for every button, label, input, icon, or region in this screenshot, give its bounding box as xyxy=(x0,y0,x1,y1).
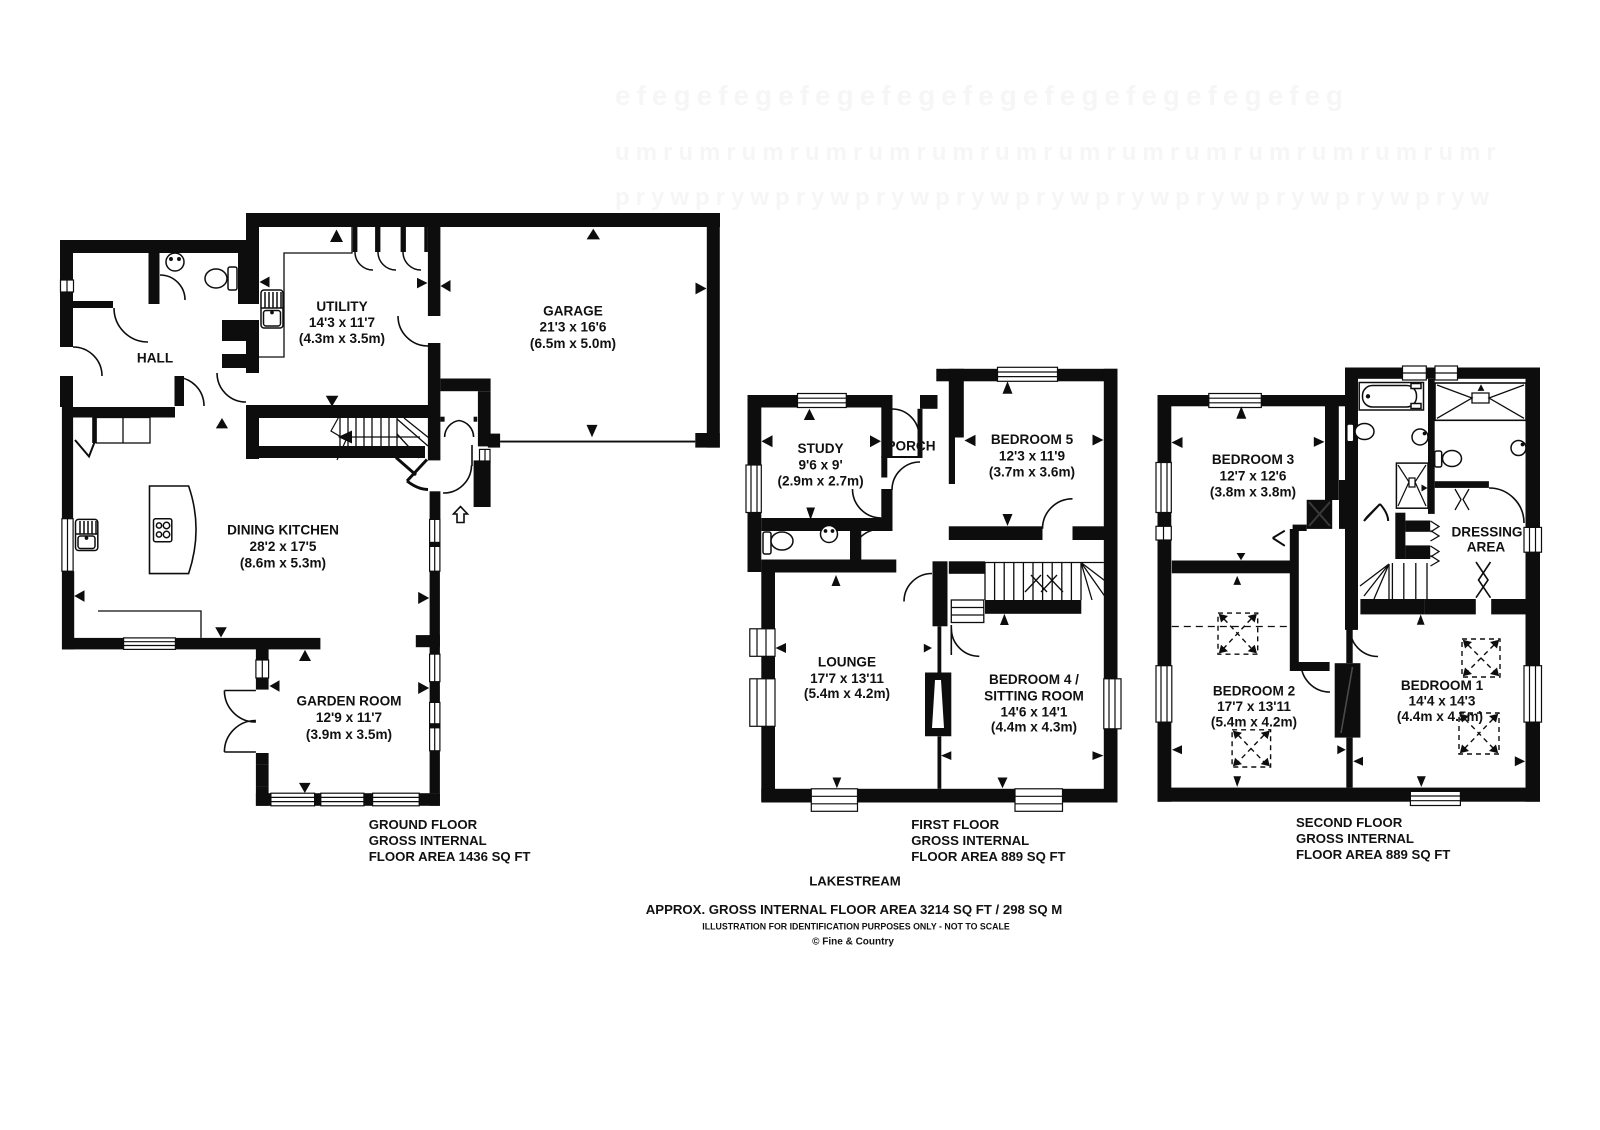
svg-text:efegefegefegefegefegefegefegef: efegefegefegefegefegefegefegefegefeg xyxy=(615,80,1349,111)
svg-text:GARAGE: GARAGE xyxy=(543,304,603,319)
svg-text:BEDROOM 2: BEDROOM 2 xyxy=(1213,683,1296,698)
svg-text:12'9 x 11'7: 12'9 x 11'7 xyxy=(316,710,382,725)
svg-text:14'3 x 11'7: 14'3 x 11'7 xyxy=(309,315,375,330)
svg-text:(5.4m x 4.2m): (5.4m x 4.2m) xyxy=(1211,714,1297,729)
svg-text:GROUND FLOOR: GROUND FLOOR xyxy=(369,817,478,832)
svg-text:BEDROOM 1: BEDROOM 1 xyxy=(1401,678,1484,693)
svg-text:DRESSING: DRESSING xyxy=(1451,525,1522,540)
svg-text:DINING KITCHEN: DINING KITCHEN xyxy=(227,523,339,538)
svg-text:12'7 x 12'6: 12'7 x 12'6 xyxy=(1220,468,1287,483)
svg-text:GROSS INTERNAL: GROSS INTERNAL xyxy=(911,833,1029,848)
svg-text:prywprywprywprywprywprywprywpr: prywprywprywprywprywprywprywprywprywpryw… xyxy=(615,184,1495,211)
svg-text:14'6 x 14'1: 14'6 x 14'1 xyxy=(1001,705,1068,720)
svg-text:FIRST FLOOR: FIRST FLOOR xyxy=(911,817,999,832)
svg-text:APPROX. GROSS INTERNAL FLOOR A: APPROX. GROSS INTERNAL FLOOR AREA 3214 S… xyxy=(646,902,1062,917)
svg-text:BEDROOM 5: BEDROOM 5 xyxy=(991,432,1074,447)
svg-text:(3.8m x 3.8m): (3.8m x 3.8m) xyxy=(1210,485,1296,500)
svg-text:PORCH: PORCH xyxy=(886,438,935,453)
svg-text:(8.6m x 5.3m): (8.6m x 5.3m) xyxy=(240,556,326,571)
svg-text:(2.9m x 2.7m): (2.9m x 2.7m) xyxy=(778,474,864,489)
svg-text:GROSS INTERNAL: GROSS INTERNAL xyxy=(369,833,487,848)
svg-text:(3.9m x 3.5m): (3.9m x 3.5m) xyxy=(306,727,392,742)
svg-text:GARDEN ROOM: GARDEN ROOM xyxy=(297,694,402,709)
svg-text:AREA: AREA xyxy=(1467,540,1506,555)
svg-text:LOUNGE: LOUNGE xyxy=(818,655,876,670)
svg-text:UTILITY: UTILITY xyxy=(316,299,367,314)
svg-text:17'7 x 13'11: 17'7 x 13'11 xyxy=(1217,699,1291,714)
svg-text:umrumrumrumrumrumrumrumrumrumr: umrumrumrumrumrumrumrumrumrumrumrumrumru… xyxy=(615,139,1502,166)
svg-text:HALL: HALL xyxy=(137,351,173,366)
svg-text:(3.7m x 3.6m): (3.7m x 3.6m) xyxy=(989,464,1075,479)
svg-text:(6.5m x 5.0m): (6.5m x 5.0m) xyxy=(530,336,616,351)
svg-text:(4.4m x 4.3m): (4.4m x 4.3m) xyxy=(991,720,1077,735)
svg-text:ILLUSTRATION FOR IDENTIFICATIO: ILLUSTRATION FOR IDENTIFICATION PURPOSES… xyxy=(702,922,1010,932)
svg-text:9'6 x 9': 9'6 x 9' xyxy=(798,457,842,472)
svg-text:(4.3m x 3.5m): (4.3m x 3.5m) xyxy=(299,331,385,346)
svg-text:21'3 x 16'6: 21'3 x 16'6 xyxy=(540,320,607,335)
svg-text:© Fine & Country: © Fine & Country xyxy=(812,937,894,948)
svg-text:SITTING ROOM: SITTING ROOM xyxy=(984,688,1084,703)
svg-text:STUDY: STUDY xyxy=(798,441,844,456)
svg-text:BEDROOM 4 /: BEDROOM 4 / xyxy=(989,672,1079,687)
svg-text:14'4 x 14'3: 14'4 x 14'3 xyxy=(1409,694,1476,709)
svg-text:28'2 x 17'5: 28'2 x 17'5 xyxy=(250,539,317,554)
svg-text:FLOOR AREA 1436 SQ FT: FLOOR AREA 1436 SQ FT xyxy=(369,849,531,864)
svg-text:17'7 x 13'11: 17'7 x 13'11 xyxy=(810,671,884,686)
svg-text:12'3 x 11'9: 12'3 x 11'9 xyxy=(999,448,1066,463)
svg-text:GROSS INTERNAL: GROSS INTERNAL xyxy=(1296,831,1414,846)
svg-text:LAKESTREAM: LAKESTREAM xyxy=(809,874,901,889)
svg-text:FLOOR AREA 889 SQ FT: FLOOR AREA 889 SQ FT xyxy=(911,849,1065,864)
svg-text:(4.4m x 4.5m): (4.4m x 4.5m) xyxy=(1397,709,1483,724)
svg-text:BEDROOM 3: BEDROOM 3 xyxy=(1212,452,1295,467)
svg-text:(5.4m x 4.2m): (5.4m x 4.2m) xyxy=(804,686,890,701)
svg-text:SECOND FLOOR: SECOND FLOOR xyxy=(1296,815,1403,830)
svg-text:FLOOR AREA 889 SQ FT: FLOOR AREA 889 SQ FT xyxy=(1296,847,1450,862)
